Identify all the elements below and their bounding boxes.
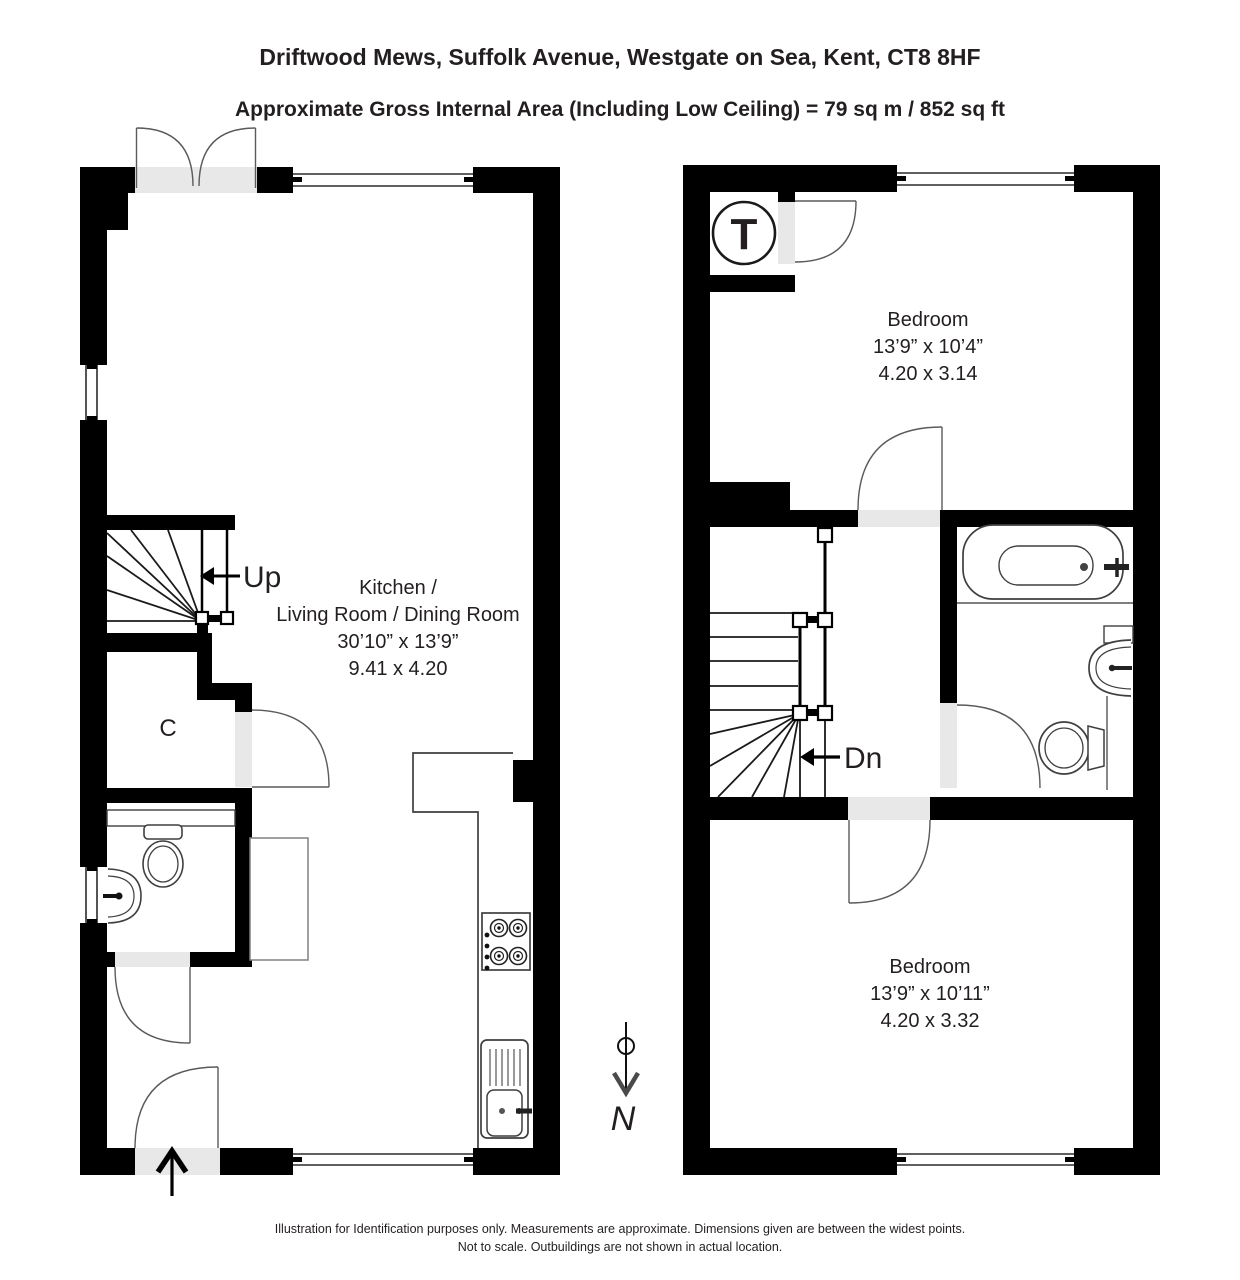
room-name-line1: Kitchen / (359, 577, 437, 599)
bedroom-front-name: Bedroom (887, 309, 968, 331)
disclaimer-line2: Not to scale. Outbuildings are not shown… (458, 1240, 783, 1254)
staircase-down: Dn (710, 528, 882, 797)
room-size-imperial: 30’10” x 13’9” (337, 631, 458, 653)
window-rear-bottom (897, 1154, 1074, 1165)
wc-shelf (107, 810, 235, 826)
north-label: N (611, 1100, 636, 1138)
window-side-living (86, 365, 97, 420)
address-title: Driftwood Mews, Suffolk Avenue, Westgate… (259, 44, 980, 70)
hob-icon (482, 913, 530, 970)
bedroom-back-door (849, 820, 930, 903)
bedroom-front-imperial: 13’9” x 10’4” (873, 336, 983, 358)
bathtub-icon (963, 525, 1129, 599)
staircase-up: Up (107, 530, 281, 635)
bathroom-door (957, 705, 1040, 788)
bedroom-front-metric: 4.20 x 3.14 (879, 363, 978, 385)
bedroom-back-name: Bedroom (889, 956, 970, 978)
north-arrow: N (611, 1022, 638, 1138)
ground-floor-walls (80, 167, 560, 1175)
room-size-metric: 9.41 x 4.20 (349, 658, 448, 680)
room-label-kitchen-living: Kitchen / Living Room / Dining Room 30’1… (276, 577, 519, 680)
room-name-line2: Living Room / Dining Room (276, 604, 519, 626)
entrance-door (135, 1067, 218, 1148)
floorplan-image: Driftwood Mews, Suffolk Avenue, Westgate… (0, 0, 1240, 1280)
down-arrow-icon (800, 748, 814, 766)
bedroom-back-imperial: 13’9” x 10’11” (870, 983, 990, 1005)
first-floor-plan: T (683, 165, 1160, 1175)
wc-door (115, 967, 190, 1043)
toilet-icon (1039, 722, 1104, 774)
tank-label: T (731, 210, 758, 259)
bedroom-front-label: Bedroom 13’9” x 10’4” 4.20 x 3.14 (873, 309, 983, 385)
up-label: Up (243, 561, 281, 594)
disclaimer-line1: Illustration for Identification purposes… (275, 1222, 965, 1236)
window-front-top (897, 173, 1074, 185)
window-rear-bottom (293, 1154, 473, 1165)
ground-floor-plan: Up C (80, 128, 560, 1196)
window-side-wc (86, 867, 97, 923)
door-openings (115, 167, 257, 1175)
down-label: Dn (844, 742, 882, 775)
gross-internal-area: Approximate Gross Internal Area (Includi… (235, 98, 1005, 121)
bedroom-front-door (858, 427, 942, 510)
tank-cupboard: T (713, 202, 775, 264)
wc-sink-icon (103, 869, 141, 923)
bathroom-sink-icon (1089, 626, 1133, 696)
wc-toilet-icon (143, 825, 183, 887)
tank-cupboard-door (795, 201, 856, 262)
storage-unit (250, 838, 308, 960)
closet-label: C (159, 715, 176, 742)
floorplan-page: Driftwood Mews, Suffolk Avenue, Westgate… (0, 0, 1240, 1280)
closet-door (252, 710, 329, 787)
kitchen-sink-icon (481, 1040, 532, 1138)
bedroom-back-label: Bedroom 13’9” x 10’11” 4.20 x 3.32 (870, 956, 990, 1032)
bedroom-back-metric: 4.20 x 3.32 (881, 1010, 980, 1032)
window-front-top (293, 174, 473, 186)
